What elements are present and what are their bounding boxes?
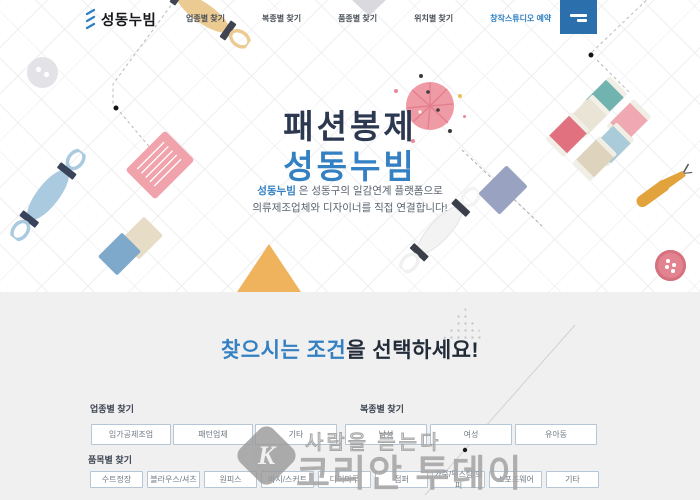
option-button[interactable]: 여성 (430, 424, 512, 445)
option-button[interactable]: 기타 (255, 424, 337, 445)
option-button[interactable]: 점퍼 (375, 471, 428, 488)
pin-dot (394, 89, 398, 93)
option-button[interactable]: 바지/스커트 (261, 471, 314, 488)
diagonal-line-decoration (0, 292, 700, 500)
group-label-apparel: 복종별 찾기 (360, 402, 404, 415)
hero-subtitle-line2: 의류제조업체와 디자이너를 직접 연결합니다! (252, 202, 447, 214)
main-nav: 업종별 찾기 복종별 찾기 품종별 찾기 위치별 찾기 창작스튜디오 예약 (186, 13, 551, 24)
page: 성동누빔 업종별 찾기 복종별 찾기 품종별 찾기 위치별 찾기 창작스튜디오 … (0, 0, 700, 500)
option-button[interactable]: 다이마루 (318, 471, 371, 488)
option-button[interactable]: 기타 (546, 471, 599, 488)
option-button[interactable]: 남성 (345, 424, 427, 445)
nav-item-industry[interactable]: 업종별 찾기 (186, 13, 225, 24)
nav-item-apparel-type[interactable]: 복종별 찾기 (262, 13, 301, 24)
finder-heading: 찾으시는 조건을 선택하세요! (0, 334, 700, 364)
finder-heading-highlight: 찾으시는 조건 (221, 339, 346, 362)
nav-item-studio-booking[interactable]: 창작스튜디오 예약 (490, 13, 551, 24)
nav-item-item-type[interactable]: 품종별 찾기 (338, 13, 377, 24)
logo[interactable]: 성동누빔 (84, 8, 156, 30)
hero-section: 성동누빔 업종별 찾기 복종별 찾기 품종별 찾기 위치별 찾기 창작스튜디오 … (0, 0, 700, 292)
hamburger-icon (570, 14, 587, 17)
option-button[interactable]: 유아동 (515, 424, 597, 445)
option-button[interactable]: 패턴업체 (173, 424, 253, 445)
hero-subtitle: 성동누빔 은 성동구의 일감연계 플랫폼으로 의류제조업체와 디자이너를 직접 … (0, 183, 700, 217)
hamburger-icon (577, 19, 587, 22)
nav-item-location[interactable]: 위치별 찾기 (414, 13, 453, 24)
group-label-item: 품목별 찾기 (88, 453, 132, 466)
option-button[interactable]: 블라우스/셔츠 (147, 471, 200, 488)
option-button[interactable]: 원피스 (204, 471, 257, 488)
pin-dot (419, 74, 423, 78)
gray-button-icon (27, 57, 58, 88)
option-button[interactable]: 스포츠웨어 (489, 471, 542, 488)
finder-heading-rest: 을 선택하세요! (346, 339, 479, 362)
hero-title-line2: 성동누빔 (0, 140, 700, 188)
option-button[interactable]: 임가공제조업 (91, 424, 171, 445)
pin-dot (458, 94, 462, 98)
group-label-industry: 업종별 찾기 (90, 402, 134, 415)
option-button[interactable]: 수트정장 (90, 471, 143, 488)
logo-text: 성동누빔 (101, 9, 156, 30)
option-button[interactable]: 가죽/무스탕/모피 (432, 471, 485, 488)
finder-section: 찾으시는 조건을 선택하세요! 업종별 찾기 임가공제조업 패턴업체 기타 복종… (0, 292, 700, 500)
hero-subtitle-highlight: 성동누빔 (257, 185, 296, 197)
menu-button[interactable] (560, 0, 597, 34)
hero-subtitle-rest: 은 성동구의 일감연계 플랫폼으로 (296, 185, 443, 197)
pink-button-icon (655, 250, 686, 281)
logo-stitch-icon (84, 8, 97, 30)
